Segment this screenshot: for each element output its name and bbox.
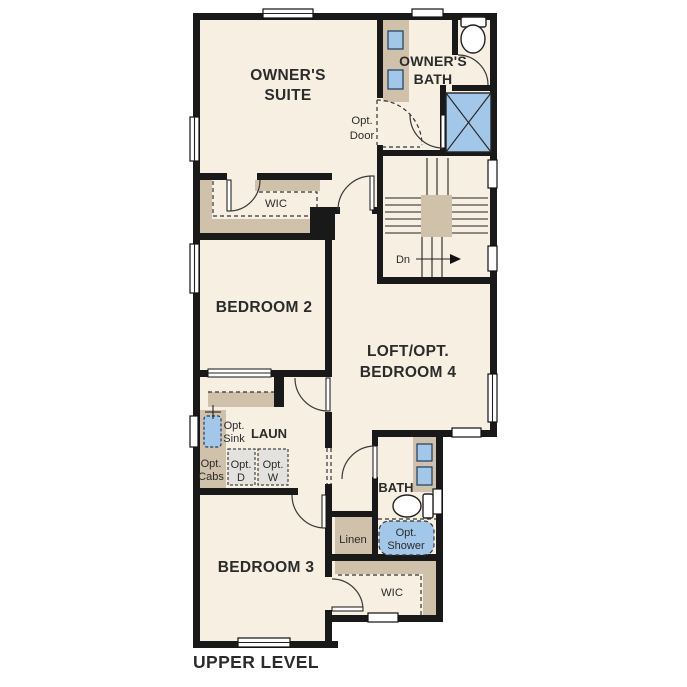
bath2-sink-icon [417, 467, 432, 485]
owners-bath-sink-icon [388, 70, 403, 89]
wic2-label: WIC [381, 587, 403, 599]
owners-shower-icon [446, 93, 491, 152]
bath2-toilet-tank-icon [423, 494, 433, 518]
owners-shower-door-leaf [441, 115, 445, 148]
bath2-door-leaf [373, 446, 377, 479]
owners-suite-label: SUITE [264, 87, 311, 104]
owners-bath-sink-icon [388, 31, 403, 49]
opt-cabs-label: Cabs [198, 471, 224, 483]
linen-label: Linen [339, 534, 367, 546]
owners-suite-label: OWNER'S [250, 67, 326, 84]
owners-bath-label: OWNER'S [399, 53, 467, 69]
opt-door-label: Door [350, 130, 375, 142]
loft-label: BEDROOM 4 [360, 364, 457, 381]
opt-door-label: Opt. [351, 115, 372, 127]
laundry-label: LAUN [251, 426, 287, 441]
bath2-label: BATH [378, 480, 413, 495]
bath2-toilet-bowl-icon [393, 495, 421, 517]
stair-landing [421, 195, 452, 237]
wic2-shelf-right [423, 561, 436, 616]
opt-shower-label: Shower [387, 540, 425, 552]
wic1-shelf-top [255, 180, 320, 191]
wic1-shelf-bottom [200, 219, 320, 233]
bath2-sink-icon [417, 444, 432, 461]
opt-sink-label: Opt. [224, 420, 245, 432]
bedroom3-door-leaf [322, 495, 326, 528]
stairs-down-label: Dn [396, 254, 410, 266]
floorplan-page: OWNER'S SUITE OWNER'S BATH Opt. Door WIC… [0, 0, 687, 687]
owners-toilet-bowl-icon [461, 25, 485, 53]
wic2-shelf-top [335, 561, 434, 574]
bedroom2-closet-shelf [208, 392, 284, 407]
bedroom3-label: BEDROOM 3 [218, 559, 315, 576]
opt-sink-label: Sink [223, 433, 245, 445]
opt-washer-label: Opt. [263, 459, 284, 471]
wic2-door-leaf [332, 607, 363, 611]
owners-bath-label: BATH [414, 71, 453, 87]
owners-suite-door-leaf [370, 176, 374, 210]
opt-dryer-label: Opt. [231, 459, 252, 471]
bedroom2-label: BEDROOM 2 [216, 299, 313, 316]
loft-label: LOFT/OPT. [367, 343, 449, 360]
opt-cabs-label: Opt. [201, 458, 222, 470]
wic1-door-leaf [227, 180, 231, 211]
opt-shower-label: Opt. [396, 527, 417, 539]
wic1-label: WIC [265, 198, 287, 210]
opt-dryer-label: D [237, 472, 245, 484]
page-title: UPPER LEVEL [193, 652, 319, 672]
laundry-door-leaf [326, 378, 330, 411]
opt-washer-label: W [268, 472, 279, 484]
floorplan-canvas: OWNER'S SUITE OWNER'S BATH Opt. Door WIC… [0, 0, 687, 687]
